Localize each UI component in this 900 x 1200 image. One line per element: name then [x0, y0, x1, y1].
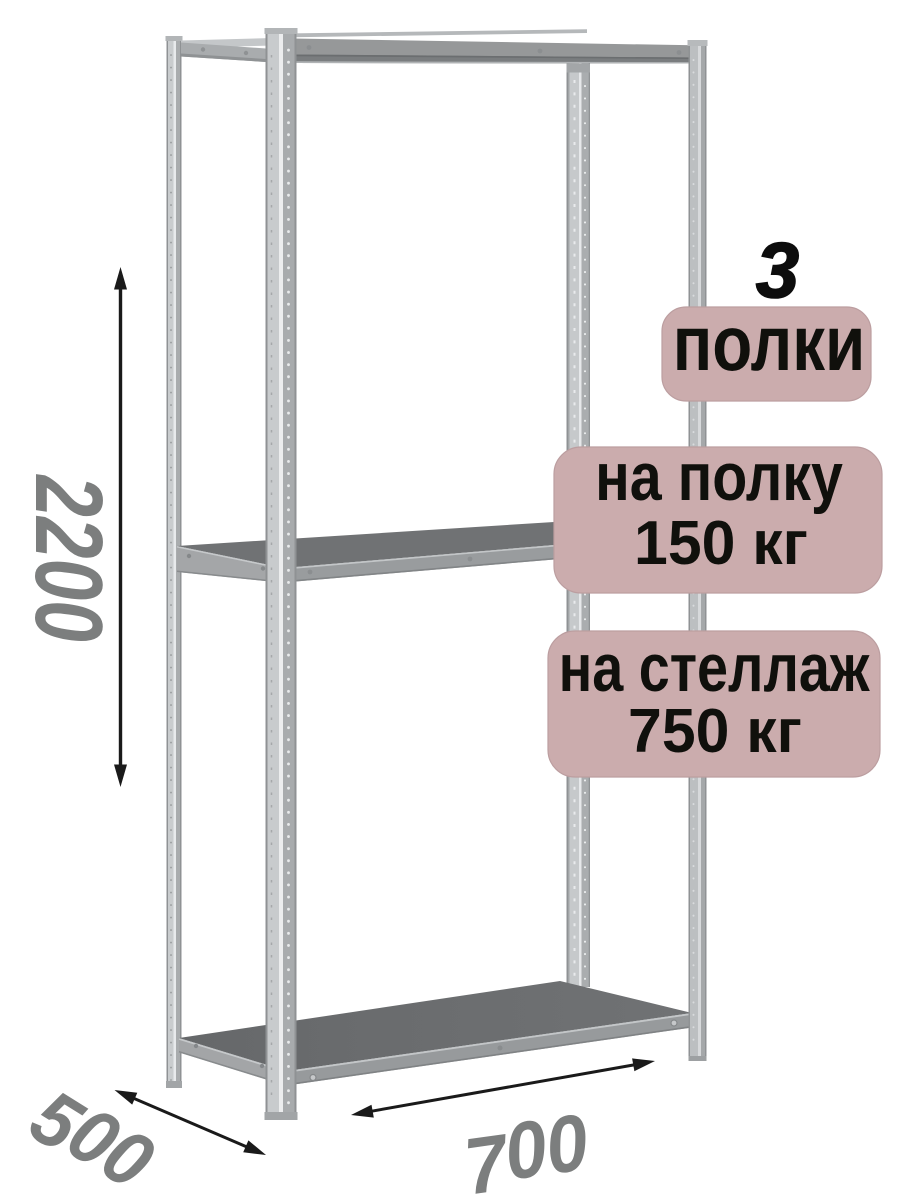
svg-text:полки: полки — [673, 301, 866, 388]
svg-text:на стеллаж: на стеллаж — [559, 631, 871, 706]
svg-text:500: 500 — [16, 1068, 168, 1200]
svg-text:150 кг: 150 кг — [634, 508, 808, 578]
svg-text:на полку: на полку — [595, 439, 843, 515]
svg-text:2200: 2200 — [15, 473, 122, 641]
svg-text:700: 700 — [458, 1098, 595, 1200]
svg-text:750 кг: 750 кг — [628, 696, 802, 766]
